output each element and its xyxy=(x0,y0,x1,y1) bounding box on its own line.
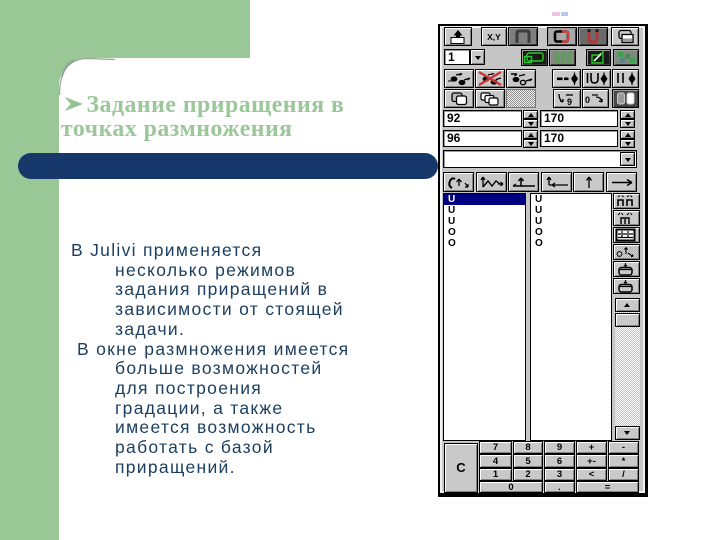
svg-text:9: 9 xyxy=(567,97,572,107)
svg-text:0: 0 xyxy=(585,95,590,105)
